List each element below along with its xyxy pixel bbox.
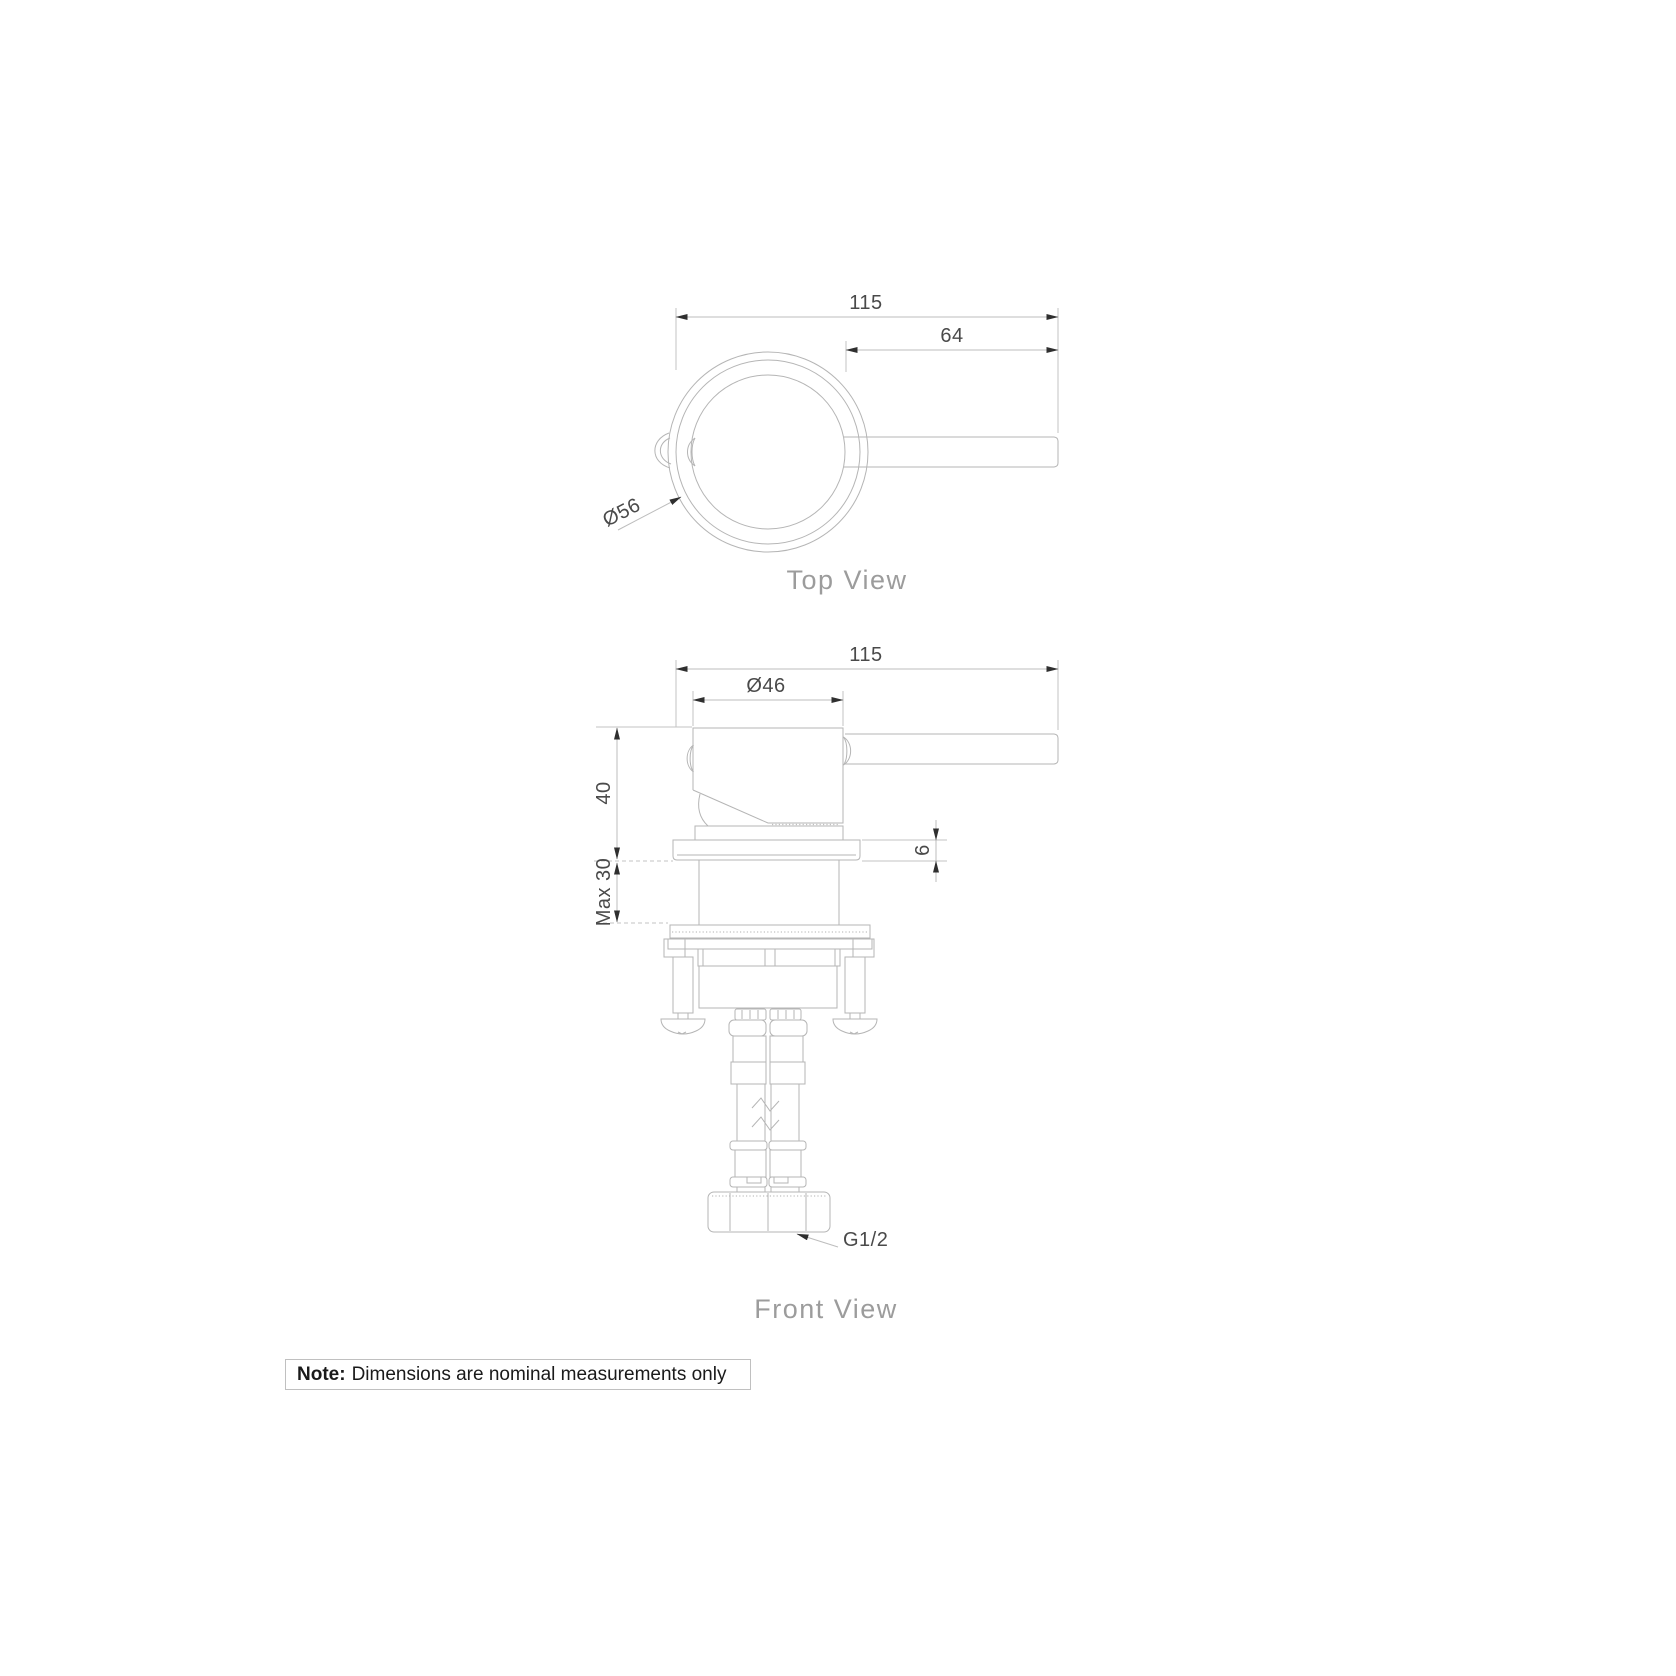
front-view: 115 Ø46 40 bbox=[593, 644, 1058, 1324]
front-base bbox=[673, 826, 860, 860]
hose-segment bbox=[770, 1036, 803, 1062]
screw-neck bbox=[850, 1013, 860, 1019]
dim-label-64: 64 bbox=[940, 325, 963, 347]
top-dim-64: 64 bbox=[846, 325, 1058, 372]
screw-shaft bbox=[845, 957, 865, 1013]
front-handle-outline bbox=[845, 734, 1058, 764]
bump-inner-arc bbox=[660, 438, 671, 464]
clamp-block-left bbox=[664, 939, 685, 957]
through-bench-shank bbox=[699, 860, 839, 925]
dim-label-40: 40 bbox=[593, 781, 615, 804]
front-dim-115: 115 bbox=[676, 644, 1058, 730]
hose-tails: G1/2 bbox=[708, 1009, 888, 1251]
fixing-screw-right bbox=[833, 957, 877, 1034]
cap-lens-arc bbox=[692, 438, 695, 466]
dim-label-dia56: Ø56 bbox=[599, 494, 644, 531]
front-dim-40: 40 bbox=[593, 727, 692, 859]
front-body bbox=[687, 728, 1058, 826]
outer-circle bbox=[668, 352, 868, 552]
mounting-bar bbox=[668, 939, 872, 949]
body-circle bbox=[676, 360, 860, 544]
note-label: Note: bbox=[297, 1364, 346, 1386]
hose-collar bbox=[769, 1141, 806, 1150]
base-plate-outline bbox=[673, 840, 860, 860]
fixing-screw-left bbox=[661, 957, 705, 1034]
hose-stubs bbox=[737, 1187, 799, 1192]
hose-segment bbox=[731, 1062, 766, 1084]
collar-tab bbox=[774, 1177, 788, 1183]
valve-body-block bbox=[699, 966, 837, 1008]
pedestal-outline bbox=[695, 826, 843, 840]
inner-circle bbox=[691, 375, 845, 529]
hose-segment bbox=[770, 1150, 801, 1177]
hose-segment bbox=[735, 1150, 766, 1177]
screw-head bbox=[661, 1019, 705, 1034]
note-box: Note:Dimensions are nominal measurements… bbox=[285, 1359, 751, 1390]
note-text: Dimensions are nominal measurements only bbox=[352, 1364, 727, 1386]
lever-arc bbox=[699, 794, 708, 826]
hose-tubes bbox=[737, 1084, 799, 1141]
hose-segment bbox=[770, 1062, 805, 1084]
dim-label-6: 6 bbox=[912, 844, 934, 856]
dim-label-dia46: Ø46 bbox=[746, 675, 785, 697]
front-dim-6: 6 bbox=[862, 820, 947, 882]
front-view-label: Front View bbox=[754, 1294, 898, 1324]
technical-drawing-page: 115 64 Ø56 Top View bbox=[0, 0, 1676, 1676]
dim-label-max30: Max 30 bbox=[593, 858, 615, 927]
top-view: 115 64 Ø56 Top View bbox=[599, 292, 1058, 595]
collar-ticks bbox=[742, 1010, 794, 1019]
nut-outline bbox=[708, 1192, 830, 1232]
top-body-circles bbox=[668, 352, 868, 552]
dim-label-115-front: 115 bbox=[849, 644, 882, 666]
clamp-block-right bbox=[853, 939, 874, 957]
collar-tab bbox=[747, 1177, 761, 1183]
top-dia56-leader: Ø56 bbox=[599, 494, 681, 531]
body-outline bbox=[693, 728, 843, 823]
screw-neck bbox=[678, 1013, 688, 1019]
right-cap-arc bbox=[844, 737, 847, 765]
front-dim-max30: Max 30 bbox=[593, 858, 673, 927]
connection-nut bbox=[708, 1192, 830, 1232]
screw-head bbox=[833, 1019, 877, 1034]
top-handle-outline bbox=[844, 437, 1058, 467]
screw-shaft bbox=[673, 957, 693, 1013]
dim-label-115-top: 115 bbox=[849, 292, 882, 314]
top-view-label: Top View bbox=[786, 565, 907, 595]
front-dim-dia46: Ø46 bbox=[693, 675, 843, 726]
top-dim-115: 115 bbox=[676, 292, 1058, 433]
drawing-svg: 115 64 Ø56 Top View bbox=[0, 0, 1676, 1676]
hose-collar bbox=[730, 1141, 767, 1150]
mounting-assembly bbox=[664, 925, 874, 1008]
top-left-bump bbox=[655, 433, 695, 468]
leader-line bbox=[797, 1234, 838, 1247]
hose-bulge bbox=[770, 1020, 807, 1036]
hose-bulge bbox=[729, 1020, 766, 1036]
dim-label-g12: G1/2 bbox=[843, 1229, 888, 1251]
hose-segment bbox=[733, 1036, 766, 1062]
bracket bbox=[698, 949, 840, 966]
